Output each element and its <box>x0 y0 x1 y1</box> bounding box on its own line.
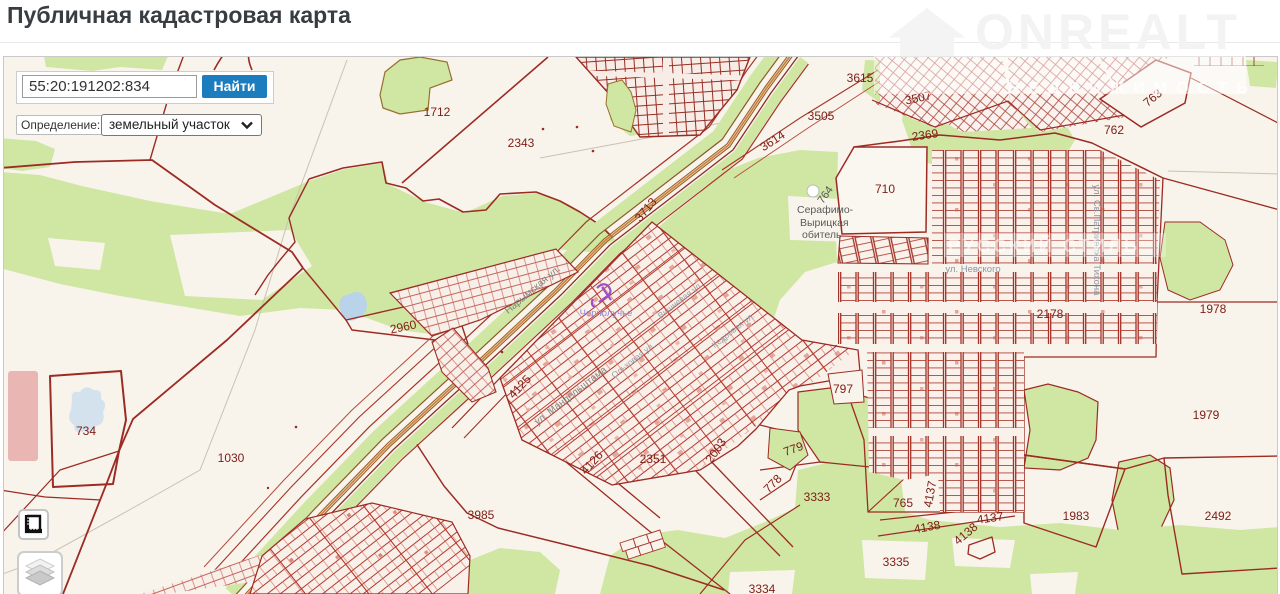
svg-text:2343: 2343 <box>508 136 535 150</box>
svg-text:3335: 3335 <box>883 555 910 569</box>
svg-text:1983: 1983 <box>1063 509 1090 523</box>
svg-text:1712: 1712 <box>424 105 451 119</box>
svg-text:Вырицкая: Вырицкая <box>800 217 849 229</box>
svg-text:734: 734 <box>76 424 96 438</box>
svg-text:1979: 1979 <box>1193 408 1220 422</box>
svg-text:2178: 2178 <box>1037 307 1064 321</box>
svg-text:3615: 3615 <box>847 71 874 85</box>
svg-text:2492: 2492 <box>1205 509 1232 523</box>
svg-text:797: 797 <box>833 382 853 396</box>
svg-text:2351: 2351 <box>640 452 667 466</box>
svg-text:765: 765 <box>893 496 913 510</box>
svg-text:Чернолучье: Чернолучье <box>580 308 633 319</box>
svg-text:3333: 3333 <box>804 490 831 504</box>
svg-text:710: 710 <box>875 182 895 196</box>
svg-text:3985: 3985 <box>468 508 495 522</box>
svg-text:обитель: обитель <box>802 229 842 241</box>
svg-text:1030: 1030 <box>218 451 245 465</box>
svg-text:ул. Невского: ул. Невского <box>945 264 1000 275</box>
svg-text:3505: 3505 <box>808 109 835 123</box>
svg-text:3334: 3334 <box>749 582 776 594</box>
svg-text:Серафимо-: Серафимо- <box>797 204 854 216</box>
svg-text:762: 762 <box>1104 123 1124 137</box>
svg-text:1978: 1978 <box>1200 302 1227 316</box>
